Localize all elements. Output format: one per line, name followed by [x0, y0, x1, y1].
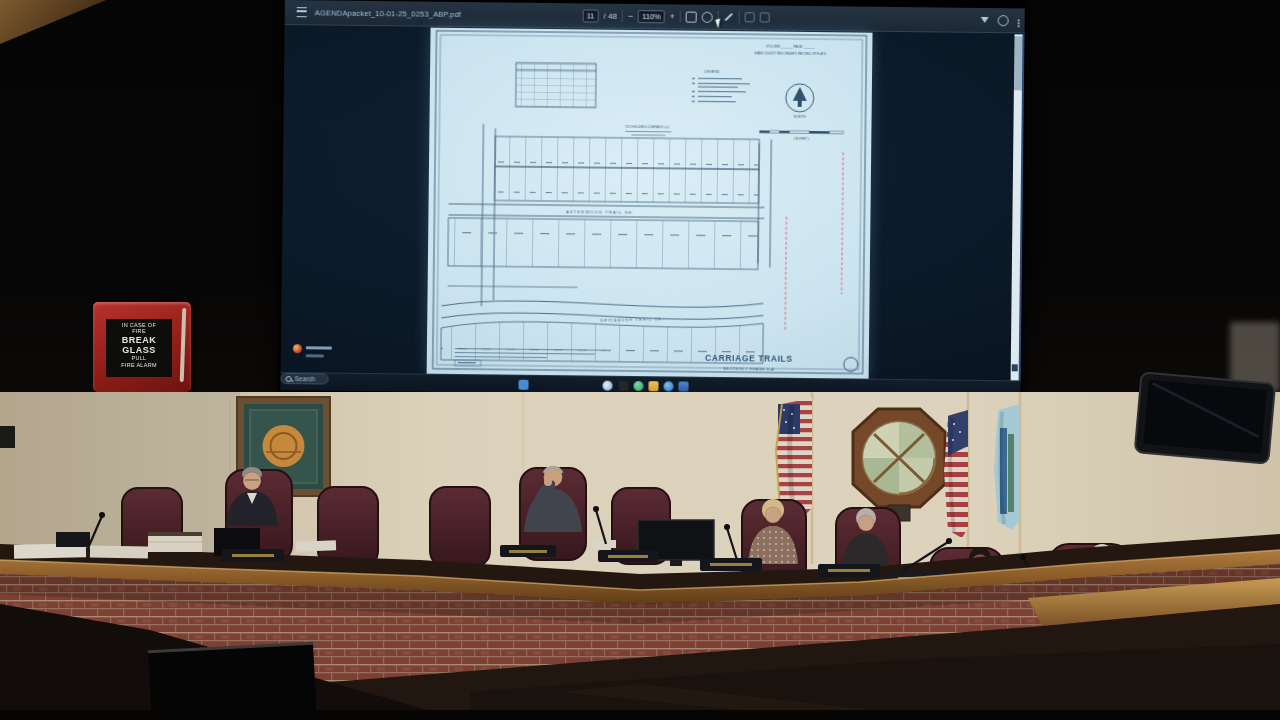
documents [592, 540, 616, 548]
start-button-icon[interactable] [518, 380, 528, 390]
fire-alarm-text: BREAK [106, 335, 172, 345]
plat-title: CARRIAGE TRAILS [705, 353, 792, 364]
nameplate [818, 564, 880, 577]
fire-alarm-box: IN CASE OF FIRE BREAK GLASS PULL FIRE AL… [93, 302, 191, 392]
plat-header: VOLUME ______ PAGE ______ MIAMI COUNTY R… [754, 44, 826, 55]
curve-table [516, 63, 596, 108]
plat-title-block: CARRIAGE TRAILS SECTION 7 PHASE V-A [705, 353, 858, 373]
tool-icon[interactable] [760, 12, 770, 22]
recorder-line: MIAMI COUNTY RECORDER'S RECORD OF PLATS [754, 51, 826, 56]
page-count-label: / 48 [603, 11, 616, 20]
ceiling-wood-beam [0, 0, 106, 44]
plat-map-drawing: VOLUME ______ PAGE ______ MIAMI COUNTY R… [427, 28, 873, 379]
street-name-bottom: SPICEBUSH TRAIL SE. [600, 316, 664, 323]
more-options-icon[interactable] [1018, 19, 1020, 21]
wall-tv [1135, 372, 1275, 463]
red-markup-lines [785, 152, 843, 333]
fit-page-icon[interactable] [686, 11, 697, 22]
zoom-in-button[interactable]: + [670, 12, 675, 21]
chair [318, 487, 378, 567]
lot-blocks [441, 136, 766, 364]
nameplate [222, 549, 284, 562]
council-chamber-scene [0, 392, 1280, 720]
scale-bar: ( IN FEET ) [759, 130, 843, 141]
icon-label-line [306, 354, 324, 357]
taskbar-search[interactable]: Search [281, 373, 329, 385]
projected-desktop: AGENDApacket_10-01-25_0253_ABP.pdf 11 / … [280, 0, 1024, 398]
street-name-top: ASTERWOOD TRAIL SE. [566, 209, 635, 215]
app-icon[interactable] [633, 381, 643, 391]
nameplate [700, 558, 762, 571]
volume-page-line: VOLUME ______ PAGE ______ [766, 44, 815, 49]
download-icon[interactable] [981, 17, 989, 23]
legend-block: LEGEND [692, 70, 750, 103]
zoom-out-button[interactable]: − [628, 11, 633, 20]
zoom-level-value[interactable]: 110% [638, 10, 665, 23]
file-explorer-icon[interactable] [648, 381, 658, 391]
fire-alarm-hinge [180, 308, 187, 382]
fire-alarm-label: IN CASE OF FIRE BREAK GLASS PULL FIRE AL… [106, 319, 172, 377]
menu-icon[interactable] [297, 7, 307, 17]
weather-widget-icon[interactable] [602, 381, 612, 391]
app-icon[interactable] [618, 381, 628, 391]
scrollbar-mark [1012, 364, 1018, 371]
fire-alarm-text: GLASS [106, 345, 172, 355]
north-arrow: NORTH [786, 84, 814, 119]
tablet [56, 532, 90, 547]
documents [296, 540, 336, 551]
search-label: Search [295, 375, 316, 382]
pdf-page: VOLUME ______ PAGE ______ MIAMI COUNTY R… [427, 28, 873, 379]
chair [430, 487, 490, 567]
fire-alarm-text: FIRE ALARM [106, 362, 172, 368]
page-number-input[interactable]: 11 [583, 9, 599, 22]
icon-label-line [306, 346, 332, 349]
documents [90, 545, 148, 558]
foreground-monitor-back [148, 644, 317, 720]
desktop-shortcut-icon[interactable] [293, 342, 353, 365]
rotate-icon[interactable] [702, 11, 713, 22]
pdf-toolbar: AGENDApacket_10-01-25_0253_ABP.pdf 11 / … [285, 0, 1025, 33]
meeting-room-photo: IN CASE OF FIRE BREAK GLASS PULL FIRE AL… [0, 0, 1280, 720]
projection-screen: AGENDApacket_10-01-25_0253_ABP.pdf 11 / … [278, 0, 1027, 412]
legend-title: LEGEND [705, 70, 720, 74]
toolbar-divider [622, 10, 623, 22]
print-icon[interactable] [998, 15, 1009, 26]
tool-icon[interactable] [745, 12, 755, 22]
pdf-filename: AGENDApacket_10-01-25_0253_ABP.pdf [315, 8, 461, 19]
thermostat [0, 426, 15, 448]
toolbar-divider [739, 11, 740, 23]
edge-browser-icon[interactable] [663, 381, 673, 391]
toolbar-divider [680, 11, 681, 23]
plat-subtitle: SECTION 7 PHASE V-A [723, 366, 774, 372]
nameplate [598, 550, 658, 562]
svg-text:TJC HOLDING COMPANY LLC: TJC HOLDING COMPANY LLC [625, 125, 670, 130]
app-icon[interactable] [678, 382, 688, 392]
nameplate [500, 545, 556, 557]
bottom-vignette [0, 710, 1280, 720]
annotate-pen-icon[interactable] [725, 13, 734, 21]
thick-binder [148, 532, 202, 552]
search-icon [286, 376, 292, 382]
app-logo-icon [293, 344, 302, 353]
scale-label: ( IN FEET ) [794, 137, 809, 141]
north-label: NORTH [794, 115, 807, 119]
owner-text: TJC HOLDING COMPANY LLC [625, 125, 671, 136]
